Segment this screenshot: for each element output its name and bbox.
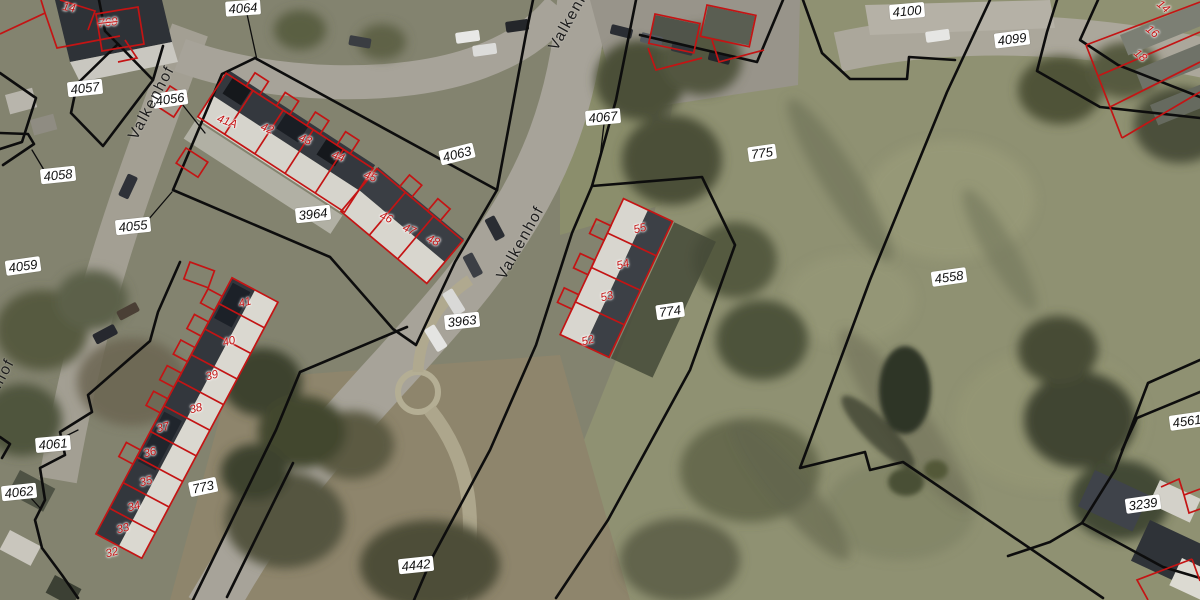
building-number-label: 768 [98,16,118,30]
building-number-label: 45 [362,169,378,185]
building-number-label: 40 [221,335,236,350]
building-number-label: 47 [401,222,418,238]
parcel-number-label[interactable]: 3239 [1125,494,1162,514]
building-number-label: 36 [142,446,157,461]
parcel-number-label[interactable]: 4100 [889,2,925,20]
parcel-number-label[interactable]: 4561 [1169,411,1200,431]
building-number-label: 37 [155,421,170,436]
parcel-number-label[interactable]: 4058 [40,166,76,185]
street-name-label: Valkenhof [0,356,19,436]
building-number-label: 48 [425,233,442,249]
parcel-number-label[interactable]: 4099 [994,29,1030,48]
building-number-label: 14 [1154,0,1172,16]
parcel-number-label[interactable]: 4059 [5,256,42,276]
building-number-label: 44 [330,149,346,165]
building-number-label: 35 [138,475,153,490]
parcel-number-label[interactable]: 4442 [398,556,434,575]
building-number-label: 32 [104,546,119,561]
cadastral-map-canvas[interactable]: 4064410040994057405640674063775405839644… [0,0,1200,600]
parcel-number-label[interactable]: 4055 [115,217,151,236]
building-number-label: 55 [632,222,647,237]
building-number-label: 54 [615,258,630,273]
building-number-label: 53 [599,290,614,305]
parcel-number-label[interactable]: 4062 [1,483,37,502]
building-number-label: 46 [378,210,395,226]
parcel-number-label[interactable]: 774 [655,302,685,321]
parcel-number-label[interactable]: 4558 [931,267,968,287]
map-labels-layer: 4064410040994057405640674063775405839644… [0,0,1200,600]
parcel-number-label[interactable]: 775 [747,144,777,163]
building-number-label: 16 [1143,23,1161,40]
building-number-label: 52 [580,334,595,349]
building-number-label: 14 [62,1,77,15]
building-number-label: 34 [126,500,141,515]
building-number-label: 41 [237,296,252,311]
parcel-number-label[interactable]: 773 [188,477,218,497]
street-name-label: Valkenhof [493,203,548,283]
building-number-label: 18 [1131,47,1149,64]
parcel-number-label[interactable]: 4057 [67,79,103,98]
building-number-label: 43 [297,132,313,148]
parcel-number-label[interactable]: 3964 [295,205,331,224]
parcel-number-label[interactable]: 4064 [225,0,261,17]
building-number-label: 38 [188,402,203,417]
building-number-label: 42 [259,121,275,137]
parcel-number-label[interactable]: 3963 [444,312,480,331]
parcel-number-label[interactable]: 4061 [35,435,71,453]
parcel-number-label[interactable]: 4063 [438,142,476,165]
building-number-label: 41A [215,113,238,131]
parcel-number-label[interactable]: 4067 [585,108,621,126]
street-name-label: Valkenhof [545,0,600,54]
building-number-label: 39 [204,369,219,384]
building-number-label: 33 [115,522,130,537]
